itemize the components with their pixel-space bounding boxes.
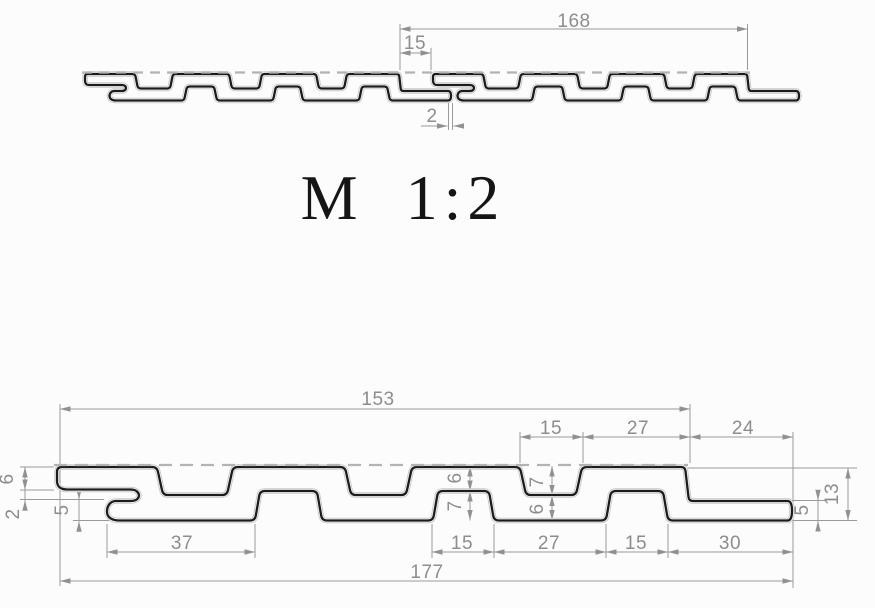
dim-label-mid2-6: 6 bbox=[527, 503, 548, 514]
dim-label-end-30: 30 bbox=[719, 533, 741, 554]
dim-label-right-5: 5 bbox=[792, 504, 813, 515]
joined-panels-profile bbox=[82, 73, 799, 101]
dim-label-mid2-7: 7 bbox=[527, 476, 548, 487]
dim-label-groove-15: 15 bbox=[540, 418, 562, 439]
single-panel-profile bbox=[54, 465, 792, 521]
dim-label-mid-7: 7 bbox=[445, 500, 466, 511]
dim-label-slat15-b: 15 bbox=[625, 533, 647, 554]
dim-label-total-177: 177 bbox=[410, 562, 443, 583]
technical-drawing-canvas: 168 15 2 M 1:2 153 15 27 24 37 15 27 15 … bbox=[0, 0, 875, 608]
dim-label-spacing-27: 27 bbox=[627, 418, 649, 439]
dim-label-slat-37: 37 bbox=[171, 533, 193, 554]
dim-label-left-2: 2 bbox=[3, 508, 24, 519]
dim-label-tongue-24: 24 bbox=[732, 418, 754, 439]
dim-label-pitch-168: 168 bbox=[557, 11, 590, 32]
dim-label-mid-6: 6 bbox=[445, 472, 466, 483]
dim-label-width-153: 153 bbox=[361, 389, 394, 410]
dim-label-seam-2: 2 bbox=[426, 106, 437, 127]
dim-label-slat15-a: 15 bbox=[451, 533, 473, 554]
dim-label-left-6: 6 bbox=[0, 473, 18, 484]
dim-label-right-13: 13 bbox=[822, 483, 843, 505]
drawing-sheet: 168 15 2 M 1:2 153 15 27 24 37 15 27 15 … bbox=[0, 0, 875, 608]
scale-label: M 1:2 bbox=[301, 162, 506, 233]
dim-label-gap-27: 27 bbox=[538, 533, 560, 554]
dim-label-left-5: 5 bbox=[52, 504, 73, 515]
dim-label-overlap-15: 15 bbox=[404, 33, 426, 54]
